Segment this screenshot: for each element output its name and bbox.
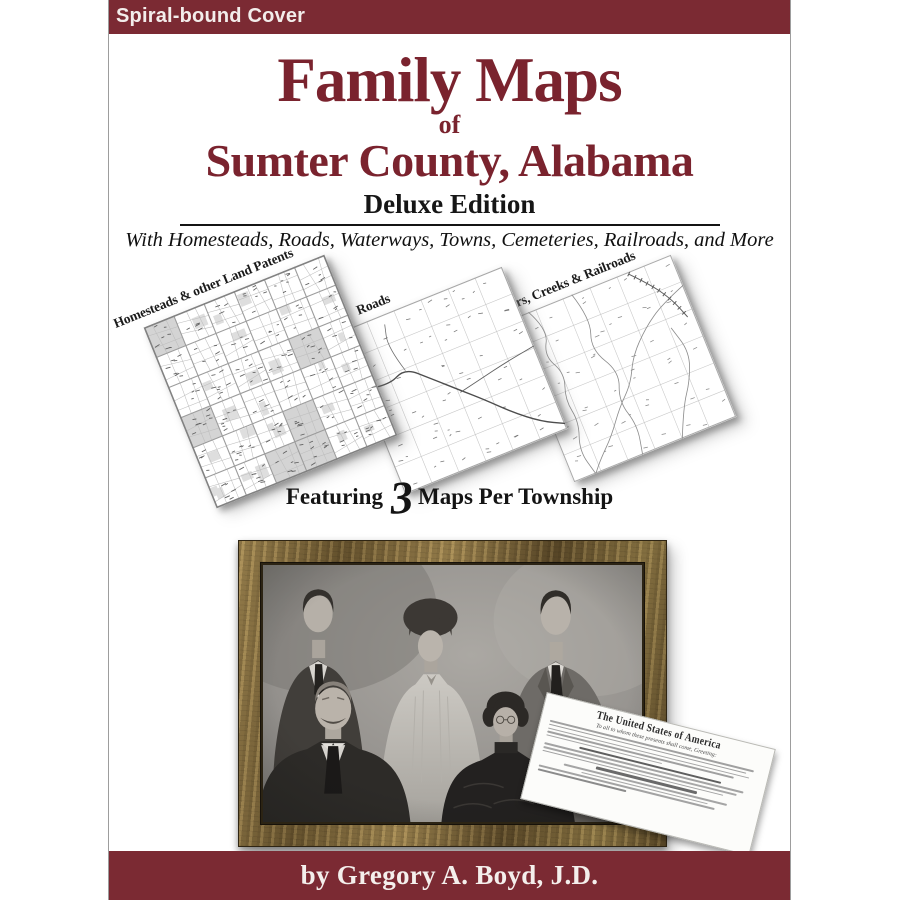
- cover-page: Spiral-bound Cover Family Maps of Sumter…: [108, 0, 791, 900]
- map-thumb-patents: Homesteads & other Land Patents: [144, 255, 398, 509]
- title-connector: of: [109, 113, 790, 136]
- divider-rule: [180, 224, 720, 226]
- top-band: Spiral-bound Cover: [109, 0, 790, 34]
- binding-badge-label: Spiral-bound Cover: [109, 0, 790, 33]
- caption-number: 3: [390, 497, 413, 499]
- caption-prefix: Featuring: [286, 484, 383, 509]
- title-county: Sumter County, Alabama: [109, 138, 790, 184]
- bottom-band: by Gregory A. Boyd, J.D.: [109, 851, 790, 900]
- title-edition: Deluxe Edition: [109, 191, 790, 218]
- title-main: Family Maps: [109, 48, 790, 112]
- caption-suffix: Maps Per Township: [418, 484, 613, 509]
- author-byline: by Gregory A. Boyd, J.D.: [109, 851, 790, 899]
- tagline: With Homesteads, Roads, Waterways, Towns…: [109, 229, 790, 252]
- maps-caption: Featuring3Maps Per Township: [109, 484, 790, 510]
- doc-line: [581, 772, 707, 805]
- title-block: Family Maps of Sumter County, Alabama De…: [109, 36, 790, 251]
- book-cover: Spiral-bound Cover Family Maps of Sumter…: [0, 0, 900, 900]
